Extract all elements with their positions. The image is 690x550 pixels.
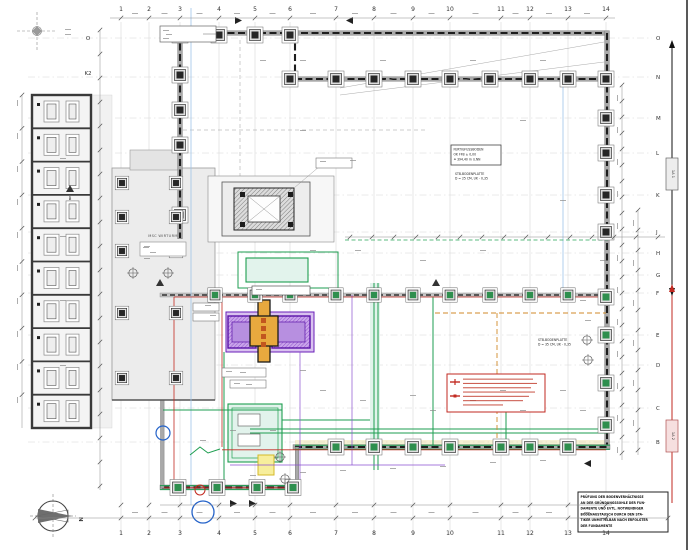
module-dot [37,170,40,173]
micro-text-dash [17,298,18,304]
grid-col-label-bottom: 14 [602,530,610,537]
note-line: DAMENTE UND EVTL. NOTWENDIGER [581,507,645,511]
micro-text-dash [633,300,634,306]
grid-col-label-bottom: 3 [178,530,182,537]
micro-text-dash [310,13,316,14]
foundation-pad-inner [69,271,76,286]
column [598,145,614,161]
micro-text-dash [440,466,446,467]
plate-note: STB-BODENPLATTED = 35 CM, UK - 0,35 [538,338,571,347]
soil-note-box: PRÜFUNG DER BODENVERHÄLTNISSEAN DER GRÜN… [578,492,668,532]
module-dot [37,303,40,306]
micro-text-dash [546,13,552,14]
plate-note: STB-BODENPLATTED = 25 CM, UK - 0,35 [455,172,488,181]
column-green [249,480,265,496]
micro-text-dash [163,30,169,31]
micro-text-dash [230,430,236,431]
grid-col-label-bottom: 1 [119,530,123,537]
module-dot [37,236,40,239]
column [115,210,129,224]
grid-row-label: B [656,440,660,446]
note-line: DER FUNDAMENTE [581,524,613,528]
foundation-pad-inner [47,271,56,286]
column-green [328,439,344,455]
foundation-pad-inner [47,370,56,385]
micro-text-dash [17,397,18,403]
micro-text-dash [470,60,476,61]
column [172,102,188,118]
micro-text-dash [17,364,18,370]
wall-marker-icon [432,279,440,286]
micro-text-dash [633,340,634,346]
micro-text-dash [617,351,618,357]
column-green [366,439,382,455]
column-green [329,288,343,302]
micro-text-dash [633,260,634,266]
micro-text-dash [391,512,397,513]
column [598,187,614,203]
foundation-pad-inner [69,204,76,219]
micro-text-dash [270,512,276,513]
column-green [405,439,421,455]
column-green [208,288,222,302]
column-green [560,439,576,455]
micro-text-dash [320,161,326,162]
grid-col-label-bottom: 7 [334,530,338,537]
column [328,71,344,87]
micro-text-dash [60,365,66,366]
section-line-1a: 1A 1 1A 2 [666,40,678,503]
micro-text-dash [132,512,138,513]
foundation-pad-inner [69,237,76,252]
foundation-pad-inner [47,137,56,152]
column [169,306,183,320]
grid-col-label-bottom: 2 [147,530,151,537]
micro-text-dash [355,250,361,251]
micro-text-dash [17,331,18,337]
column [442,71,458,87]
micro-text-dash [473,13,479,14]
grid-col-label-top: 9 [411,6,415,13]
note-line: ≙ 394,40 m ü.NN [454,158,482,162]
legend-text-line [463,383,537,384]
micro-text-dash [430,410,436,411]
foundation-pad-inner [47,337,56,352]
micro-text-dash [429,13,435,14]
column-green [483,288,497,302]
note-line: BODENAUSTAUSCH DURCH DEN STA- [581,512,644,516]
micro-text-dash [580,300,586,301]
micro-text-dash [240,372,246,373]
micro-text-dash [560,200,566,201]
micro-text-dash [617,287,618,293]
north-compass: N [30,494,83,538]
column [169,371,183,385]
grid-row-label-left: O [86,36,91,42]
grid-col-label-top: 12 [526,6,534,13]
note-line: PRÜFUNG DER BODENVERHÄLTNISSE [581,494,644,499]
micro-text-dash [391,13,397,14]
micro-text-dash [480,250,486,251]
foundation-pad-inner [47,237,56,252]
micro-text-dash [17,265,18,271]
column-green [285,480,301,496]
foundation-pad-inner [69,304,76,319]
legend-text-line [463,387,531,388]
micro-text-dash [600,260,606,261]
column-green [561,288,575,302]
micro-text-dash [350,160,356,161]
column [169,176,183,190]
grid-row-label: M [656,116,661,122]
micro-text-dash [540,460,546,461]
micro-text-dash [234,512,240,513]
grid-col-label-bottom: 9 [411,530,415,537]
column-green [493,439,509,455]
column [247,27,263,43]
wall-section-label: B [69,196,72,201]
micro-text-dash [340,470,346,471]
micro-text-dash [250,475,256,476]
micro-text-dash [270,430,276,431]
micro-text-dash [633,220,634,226]
foundation-pad-inner [69,171,76,186]
grid-col-label-bottom: 13 [564,530,572,537]
micro-text-dash [490,462,496,463]
column [482,71,498,87]
micro-text-dash [226,371,232,372]
micro-text-dash [256,289,262,290]
micro-text-dash [520,120,526,121]
foundation-pad-inner [69,404,76,419]
note-line: TIKER UNMITTELBAR NACH ERFOLGTER [581,518,649,522]
module-dot [37,136,40,139]
micro-text-dash [60,158,66,159]
note-line: AN DER GRÜNDUNGSSOHLE DER FUN- [581,500,647,505]
micro-text-dash [17,199,18,205]
module-dot [37,203,40,206]
column-green [443,288,457,302]
section-label-1a2: 1A 2 [671,432,675,440]
legend-text-line [463,400,523,401]
micro-text-dash [310,250,316,251]
grid-col-label-top: 6 [288,6,292,13]
micro-text-dash [546,512,552,513]
micro-text-dash [17,133,18,139]
grid-row-label: J [655,230,658,236]
grid-row-label: N [656,75,660,81]
micro-text-dash [520,410,526,411]
survey-point [17,12,57,52]
mixer-tower-hall [112,168,215,400]
grid-col-label-bottom: 8 [372,530,376,537]
micro-text-dash [60,300,66,301]
micro-text-dash [17,100,18,106]
foundation-pad-inner [47,171,56,186]
column-green [406,288,420,302]
column [282,27,298,43]
callout-box [252,286,310,295]
micro-text-dash [584,13,590,14]
grid-col-label-bottom: 6 [288,530,292,537]
micro-text-dash [132,13,138,14]
column [598,224,614,240]
module-dot [37,403,40,406]
grid-row-label-left: K2 [84,71,91,77]
micro-text-dash [617,319,618,325]
note-line: OK FFB ± 0,00 [454,153,477,157]
micro-text-dash [617,191,618,197]
grid-col-label-top: 3 [178,6,182,13]
micro-text-dash [513,13,519,14]
micro-text-dash [210,315,216,316]
micro-text-dash [429,512,435,513]
column-green [367,288,381,302]
column-green [442,439,458,455]
micro-text-dash [320,390,326,391]
column [366,71,382,87]
micro-text-dash [410,395,416,396]
legend-text-line [463,392,535,393]
hall-label: MSC WIRTURM [148,234,178,238]
column [282,71,298,87]
grid-row-label: O [656,36,661,42]
micro-text-dash [310,512,316,513]
column [115,371,129,385]
micro-text-dash [234,13,240,14]
foundation-pad-inner [69,104,76,119]
column-green [523,288,537,302]
grid-col-label-top: 10 [446,6,454,13]
micro-text-dash [513,512,519,513]
note-line: FERTIGFUSSBODEN [454,148,485,152]
micro-text-dash [390,468,396,469]
callout-box [193,303,219,311]
grid-row-label: D [656,363,660,369]
micro-text-dash [17,166,18,172]
micro-text-dash [617,447,618,453]
circle-cross-mark [581,334,593,346]
column [172,137,188,153]
terrace-strip [91,95,112,428]
column [560,71,576,87]
micro-text-dash [500,390,506,391]
micro-text-dash [300,370,306,371]
grid-row-label: E [656,333,660,339]
column-green [598,289,614,305]
micro-text-dash [150,252,156,253]
view-arrow-icon [584,460,591,467]
micro-text-dash [205,305,211,306]
micro-text-dash [617,383,618,389]
column-green [522,439,538,455]
module-dot [37,103,40,106]
micro-text-dash [585,320,591,321]
grid-col-label-top: 7 [334,6,338,13]
callout-box [140,242,186,256]
foundation-pad-inner [47,104,56,119]
column-green [598,327,614,343]
grid-col-label-top: 8 [372,6,376,13]
grid-col-label-bottom: 4 [217,530,221,537]
foundation-pad-inner [47,404,56,419]
micro-text-dash [260,60,266,61]
module-dot [37,336,40,339]
note-line: D = 25 CM, UK - 0,35 [455,177,488,181]
foundation-pad-inner [47,304,56,319]
grid-col-label-top: 4 [217,6,221,13]
floor-plan-sheet: N 1A 1 1A 2 B [0,0,690,550]
grid-row-label: F [656,291,659,297]
callout-box [316,158,352,168]
grid-row-label: C [656,406,660,412]
micro-text-dash [352,13,358,14]
micro-text-dash [166,34,172,35]
foundation-pad-inner [47,204,56,219]
foundation-pad-inner [69,137,76,152]
micro-text-dash [617,223,618,229]
column-green [209,480,225,496]
micro-text-dash [234,383,240,384]
circle-cross-mark [582,354,594,366]
micro-text-dash [420,260,426,261]
micro-text-dash [144,246,150,247]
column [522,71,538,87]
foundation-pad-inner [69,370,76,385]
micro-text-dash [617,95,618,101]
grid-row-label: G [656,273,660,279]
micro-text-dash [380,60,386,61]
micro-text-dash [580,410,586,411]
view-arrow-icon [230,500,237,507]
micro-text-dash [197,512,203,513]
note-line: STB-BODENPLATTE [538,338,567,342]
micro-text-dash [270,13,276,14]
micro-text-dash [617,415,618,421]
module-dot [37,369,40,372]
legend-text-line [463,379,533,380]
callout-box [193,313,219,321]
micro-text-dash [617,159,618,165]
note-line: STB-BODENPLATTE [455,172,484,176]
micro-text-dash [617,255,618,261]
column [598,110,614,126]
micro-text-dash [617,127,618,133]
module-dot [37,270,40,273]
micro-text-dash [162,13,168,14]
micro-text-dash [633,420,634,426]
section-label-1a1: 1A 1 [671,170,675,178]
column-green [170,480,186,496]
micro-text-dash [560,390,566,391]
column-green [598,375,614,391]
grid-col-label-bottom: 10 [446,530,454,537]
micro-text-dash [633,380,634,386]
micro-text-dash [246,384,252,385]
legend-text-line [463,396,529,397]
column [115,244,129,258]
note-line: D = 35 CM, UK - 0,35 [538,343,571,347]
column-green [598,417,614,433]
turbine-foundation [226,300,314,362]
micro-text-dash [300,472,306,473]
column [115,306,129,320]
grid-col-label-top: 13 [564,6,572,13]
micro-text-dash [163,38,169,39]
micro-text-dash [360,400,366,401]
column [169,210,183,224]
micro-text-dash [300,130,306,131]
grid-row-label: K [656,193,660,199]
micro-text-dash [200,440,206,441]
column [405,71,421,87]
micro-text-dash [65,34,71,35]
legend-text-line [463,404,503,405]
plan-drawing: N 1A 1 1A 2 B [0,0,690,550]
micro-text-dash [473,512,479,513]
micro-text-dash [300,60,306,61]
grid-row-label: L [656,151,660,157]
grid-col-label-top: 14 [602,6,610,13]
grid-col-label-bottom: 11 [497,530,505,537]
micro-text-dash [144,258,150,259]
micro-text-dash [540,60,546,61]
column [172,67,188,83]
micro-text-dash [60,236,66,237]
column [115,176,129,190]
grid-col-label-top: 5 [253,6,257,13]
micro-text-dash [17,232,18,238]
grid-col-label-top: 1 [119,6,123,13]
grid-col-label-top: 2 [147,6,151,13]
grid-col-label-bottom: 12 [526,530,534,537]
micro-text-dash [143,247,149,248]
survey-circle [192,501,214,523]
micro-text-dash [162,512,168,513]
grid-col-label-top: 11 [497,6,505,13]
micro-text-dash [65,29,71,30]
column [598,71,614,87]
micro-text-dash [584,512,590,513]
grid-row-label: H [656,251,660,257]
micro-text-dash [352,512,358,513]
micro-text-dash [197,13,203,14]
foundation-pad-inner [69,337,76,352]
grid-col-label-bottom: 5 [253,530,257,537]
